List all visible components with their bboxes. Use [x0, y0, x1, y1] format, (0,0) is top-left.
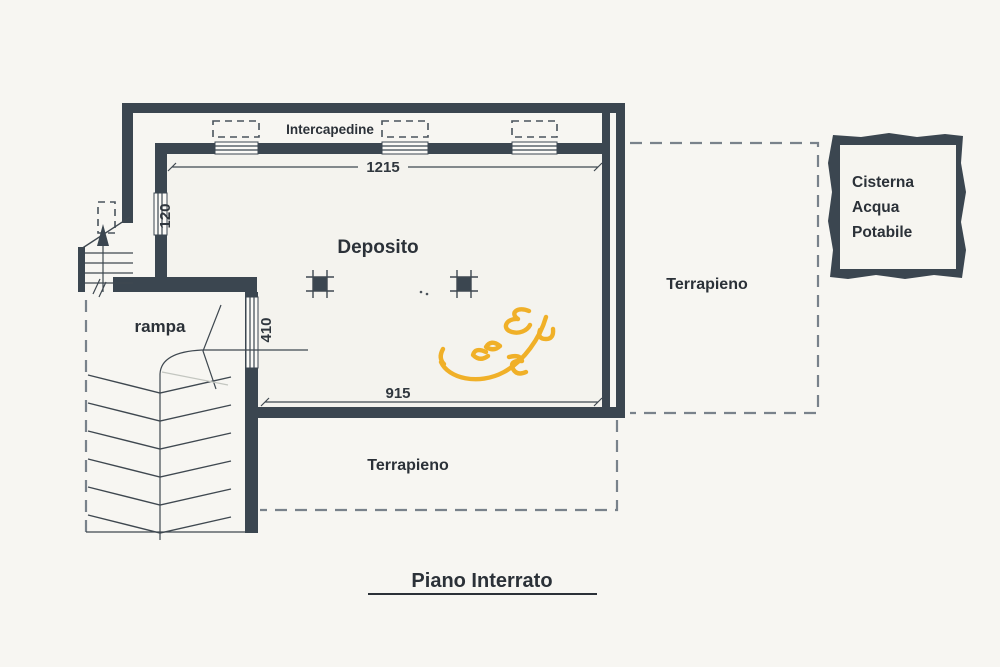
label-cisterna-line1: Cisterna — [852, 174, 914, 191]
label-cisterna-line2: Acqua — [852, 199, 900, 216]
wall-under-stairs — [113, 277, 257, 292]
dimension-915-value: 915 — [385, 385, 410, 402]
window-top-1 — [215, 142, 258, 154]
window-top-3 — [512, 142, 557, 154]
floor-plan-drawing: 1215 915 120 410 Intercapedine Deposito … — [0, 0, 1000, 667]
floor-plan-canvas: 1215 915 120 410 Intercapedine Deposito … — [0, 0, 1000, 667]
wall-bottom — [245, 407, 625, 418]
window-ramp-410 — [246, 297, 258, 368]
wall-right-outer — [616, 103, 625, 418]
plan-speck-1 — [420, 291, 423, 294]
label-terrapieno-right: Terrapieno — [666, 276, 748, 293]
stair-side-wall — [78, 247, 85, 292]
plan-speck-2 — [426, 293, 429, 296]
label-deposito: Deposito — [337, 237, 418, 258]
wall-left-outer — [122, 103, 133, 223]
dimension-120-value: 120 — [157, 203, 174, 228]
label-rampa: rampa — [134, 317, 186, 336]
label-terrapieno-bottom: Terrapieno — [367, 457, 449, 474]
label-intercapedine: Intercapedine — [286, 122, 374, 137]
dimension-410-value: 410 — [258, 317, 275, 342]
wall-right-inner — [602, 113, 610, 408]
wall-top-outer — [122, 103, 625, 113]
label-cisterna-line3: Potabile — [852, 224, 913, 241]
window-top-2 — [382, 142, 428, 154]
page-title: Piano Interrato — [411, 570, 552, 592]
dimension-1215-value: 1215 — [366, 159, 399, 176]
cisterna-box: Cisterna Acqua Potabile — [828, 133, 966, 279]
